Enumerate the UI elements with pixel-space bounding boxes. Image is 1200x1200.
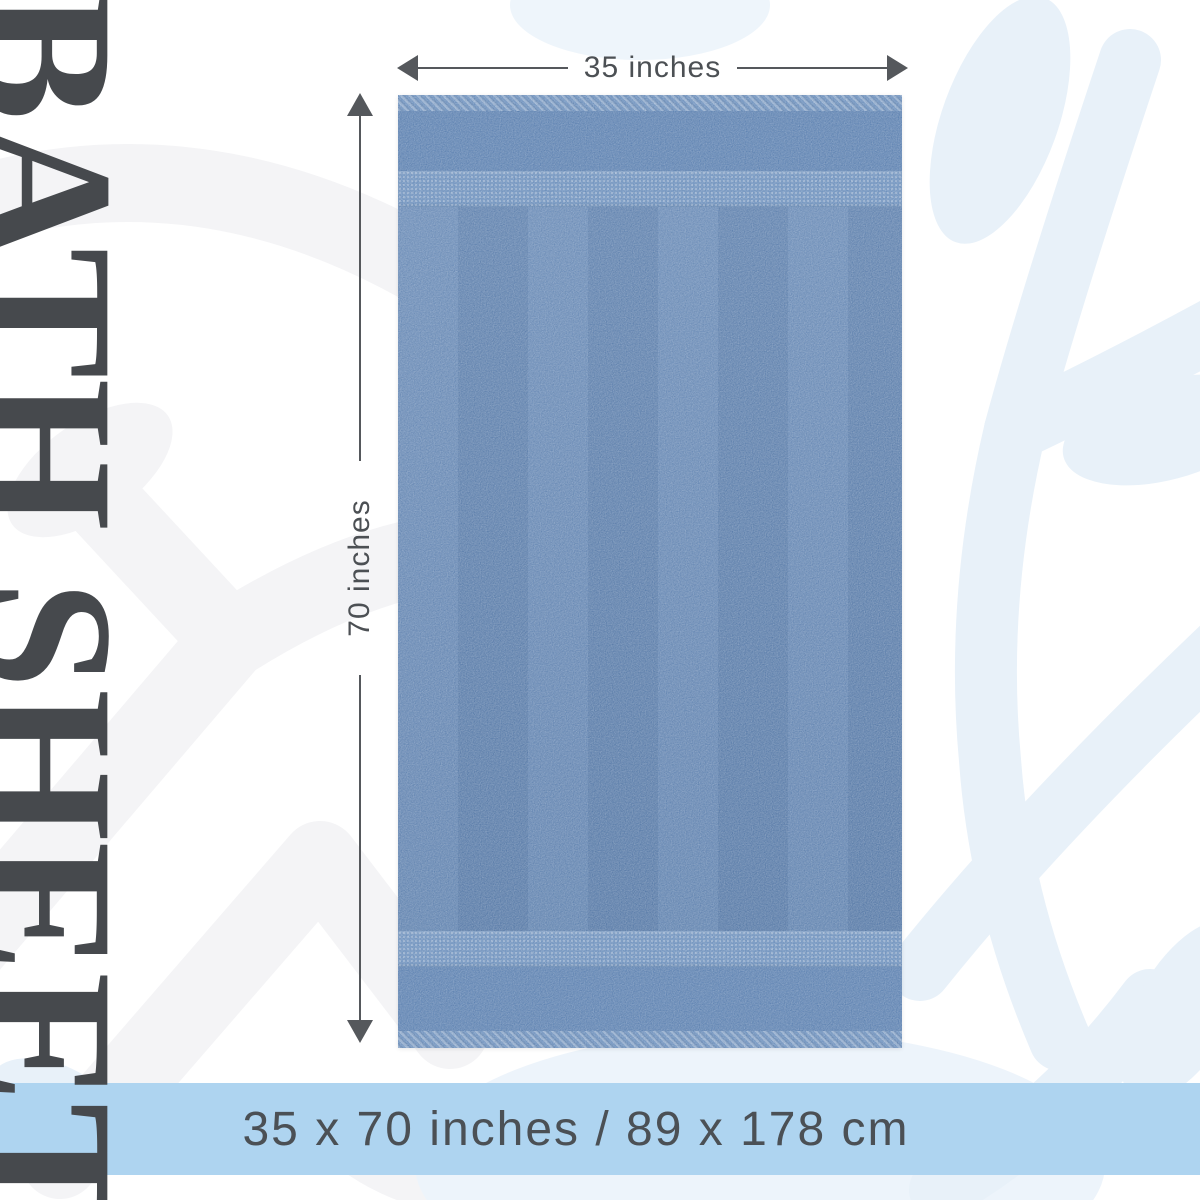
towel-terry-band-bottom bbox=[398, 967, 902, 1031]
towel-selvage-edge-bottom bbox=[398, 1031, 902, 1048]
dimension-line bbox=[418, 67, 568, 69]
dimension-line bbox=[359, 675, 361, 1020]
product-image-canvas: BATH SHEET 35 inches 70 inches bbox=[0, 0, 1200, 1200]
size-banner-text: 35 x 70 inches / 89 x 178 cm bbox=[242, 1102, 909, 1157]
size-banner: 35 x 70 inches / 89 x 178 cm bbox=[0, 1083, 1200, 1175]
dimension-line bbox=[737, 67, 887, 69]
height-dimension-label-box: 70 inches bbox=[347, 461, 373, 675]
width-dimension-label: 35 inches bbox=[568, 51, 737, 85]
height-dimension-label: 70 inches bbox=[343, 499, 377, 636]
product-title: BATH SHEET bbox=[0, 0, 142, 1200]
height-dimension: 70 inches bbox=[347, 93, 373, 1043]
arrowhead-up-icon bbox=[347, 93, 373, 116]
width-dimension: 35 inches bbox=[397, 47, 908, 89]
arrowhead-left-icon bbox=[397, 55, 418, 81]
towel-dobby-band-bottom bbox=[398, 931, 902, 967]
towel-dobby-band-top bbox=[398, 171, 902, 207]
towel-body bbox=[398, 207, 902, 931]
towel-terry-band-top bbox=[398, 111, 902, 171]
towel-image bbox=[398, 95, 902, 1048]
arrowhead-right-icon bbox=[887, 55, 908, 81]
arrowhead-down-icon bbox=[347, 1020, 373, 1043]
dimension-line bbox=[359, 116, 361, 461]
towel-selvage-edge-top bbox=[398, 95, 902, 111]
